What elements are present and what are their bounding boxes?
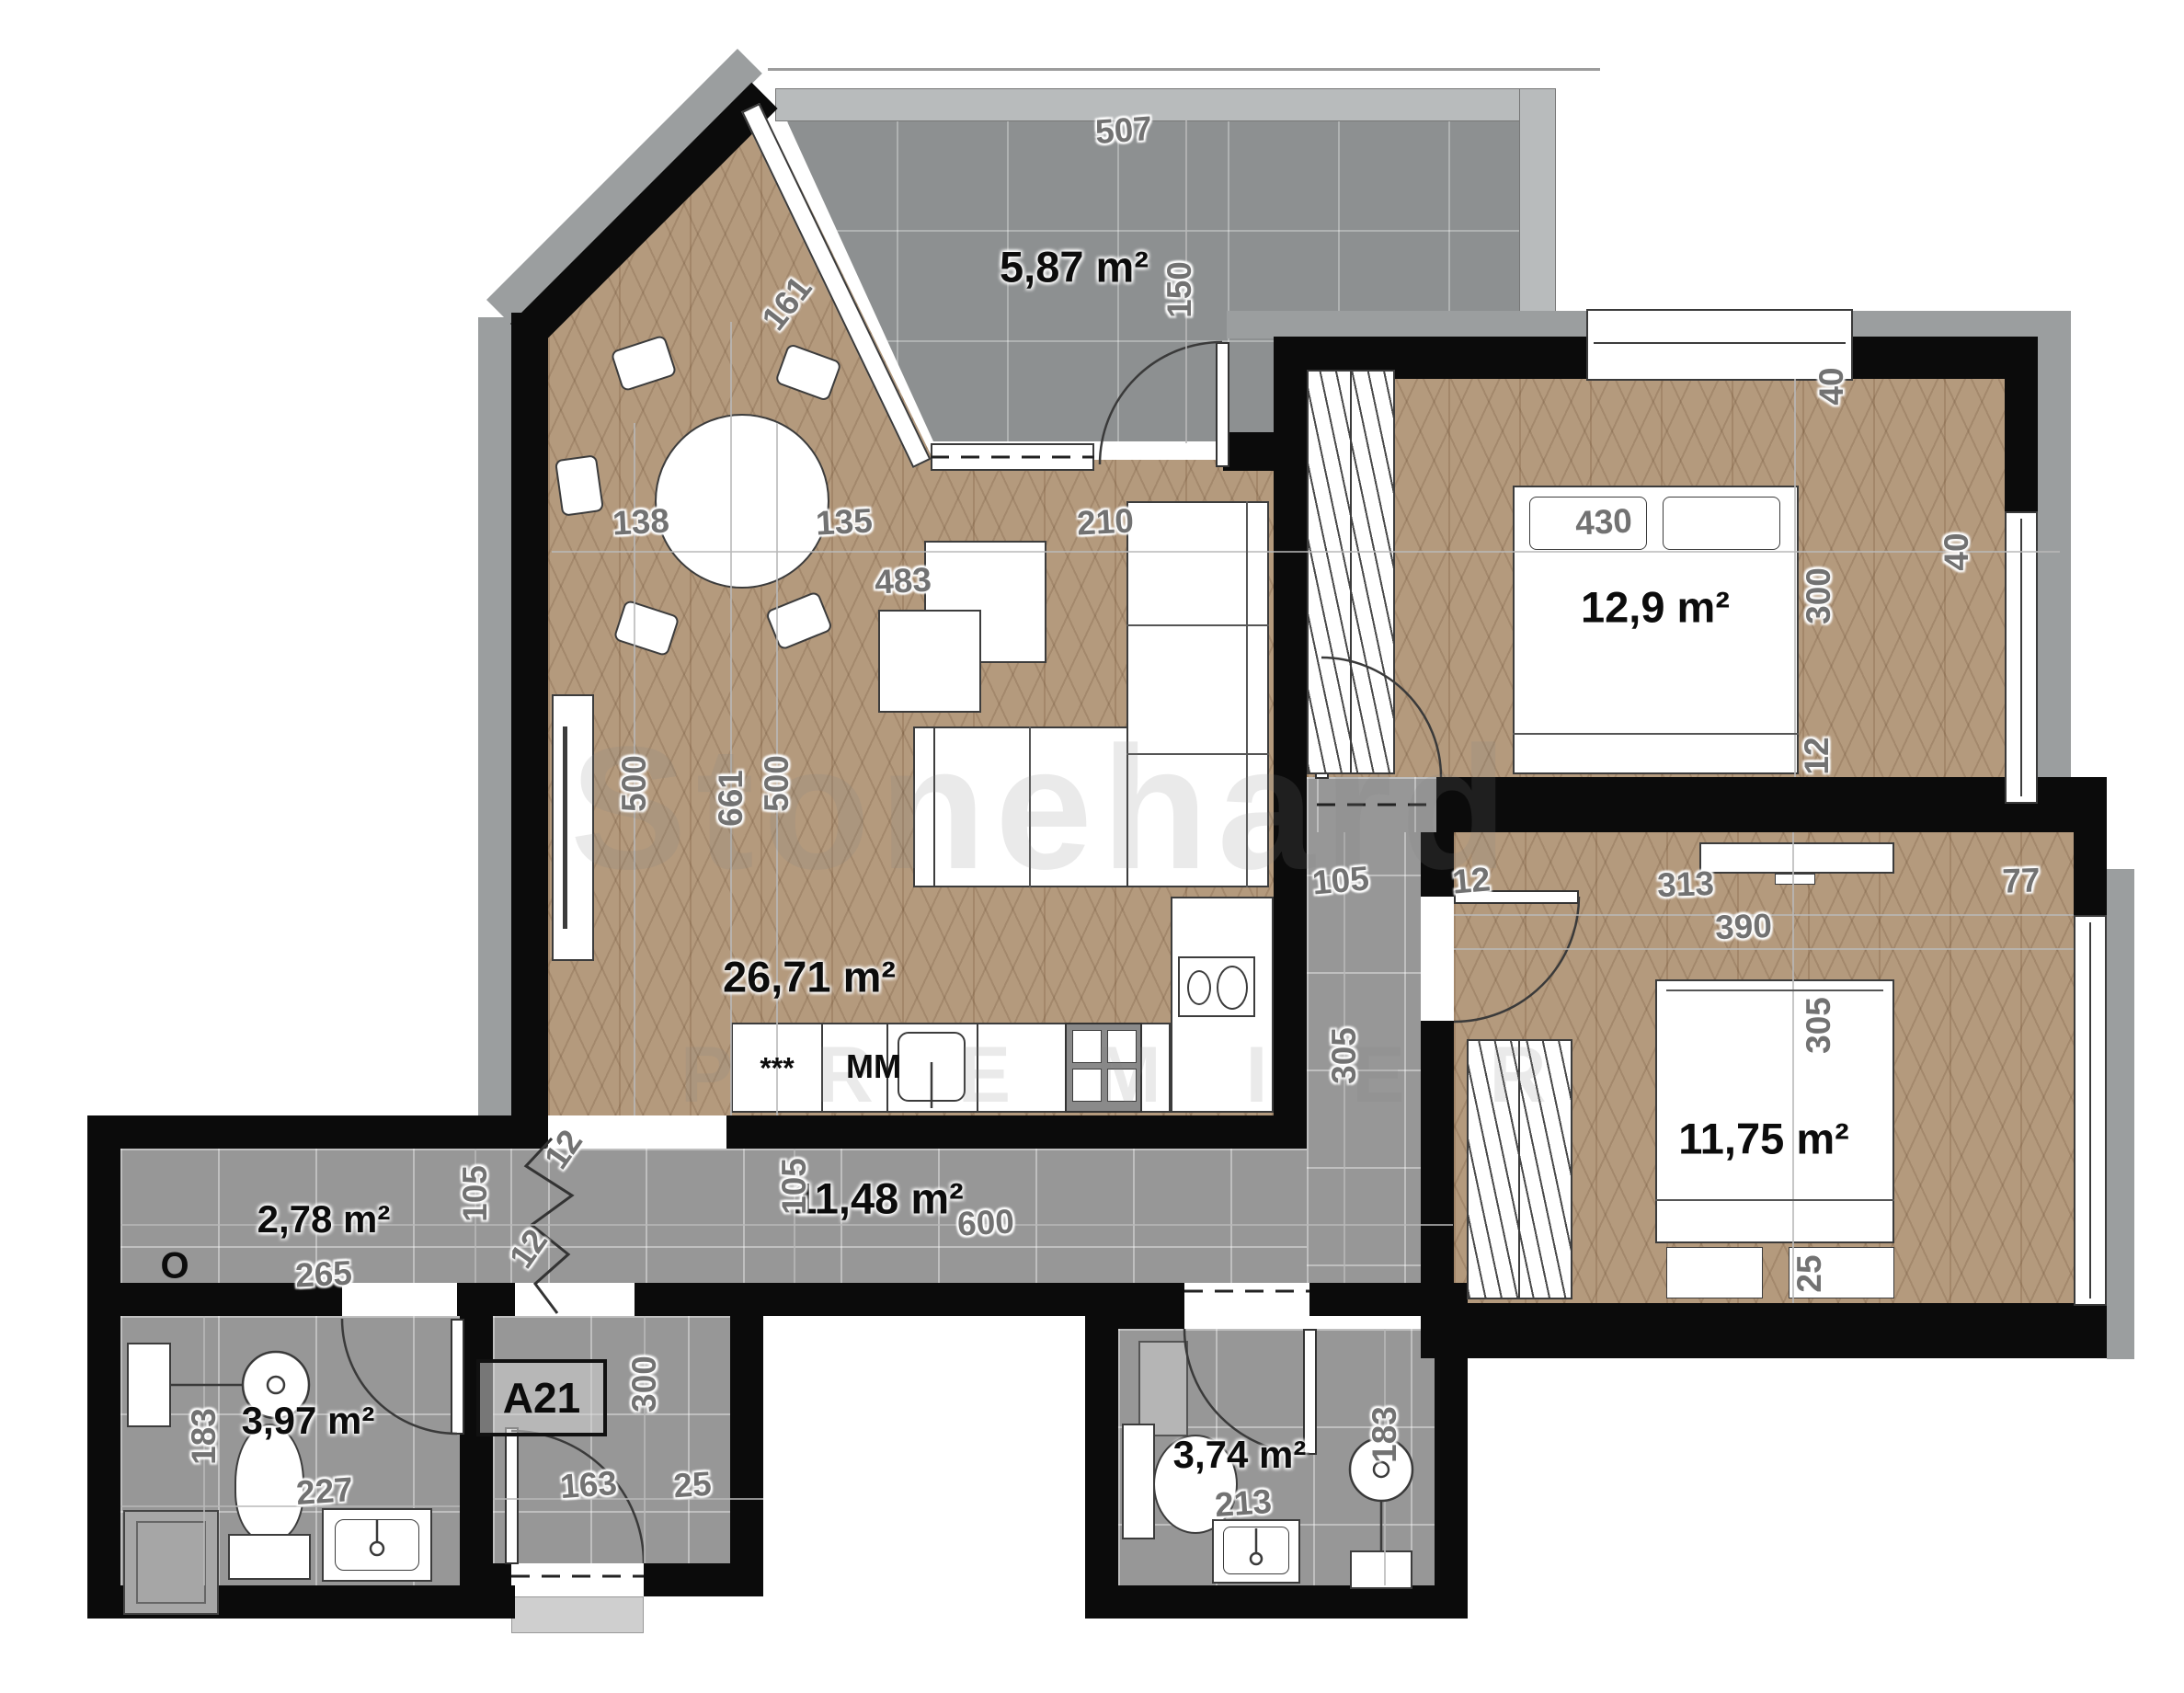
dim-105-corridor: 105 [775,1158,814,1215]
area-label-bathroom2: 3,74 m² [1173,1433,1307,1477]
dim-265: 265 [294,1253,353,1295]
dishwasher-label: *** [760,1052,794,1086]
dim-305-bedroom2: 305 [1800,997,1838,1054]
dim-300-bedroom1: 300 [1800,567,1838,624]
dim-25-bedroom2: 25 [1790,1254,1829,1292]
dim-500a: 500 [615,755,654,812]
dim-40a: 40 [1812,367,1851,405]
washing-machine-label: MM [846,1047,901,1086]
dim-40b: 40 [1938,532,1976,570]
dim-183-bathroom1: 183 [185,1408,223,1465]
shower-head-center-bathroom2 [1374,1462,1389,1477]
dim-500b: 500 [758,755,796,812]
watermark-subtitle: P R E M I E R [680,1030,1578,1121]
dim-105-entry: 105 [456,1165,495,1222]
dim-483: 483 [874,560,932,601]
area-label-bedroom1: 12,9 m² [1581,582,1730,633]
area-label-balcony: 5,87 m² [1000,242,1149,292]
area-label-bedroom2: 11,75 m² [1678,1114,1849,1164]
dim-12-bedroom1: 12 [1798,737,1836,774]
dim-661: 661 [712,770,750,827]
dim-305-hall: 305 [1325,1027,1364,1084]
dim-430: 430 [1574,501,1633,543]
dim-105-hall: 105 [1310,859,1370,902]
dim-163: 163 [559,1464,619,1506]
dim-600: 600 [956,1202,1015,1243]
dim-150: 150 [1161,261,1199,318]
dim-227: 227 [295,1470,355,1513]
dim-138: 138 [612,501,670,543]
dim-507: 507 [1094,109,1154,152]
dim-25-vestibule: 25 [672,1465,713,1506]
dim-300-vestibule: 300 [625,1356,664,1413]
sink-tap-dot-bathroom2 [1251,1553,1262,1564]
area-label-bathroom1: 3,97 m² [242,1399,375,1443]
dim-390: 390 [1714,907,1772,947]
entry-cabinet-label: O [160,1246,189,1287]
dim-183-bathroom2: 183 [1366,1406,1404,1463]
dim-135: 135 [815,501,874,543]
area-label-corridor: 11,48 m² [793,1173,964,1224]
unit-label-box: A21 [476,1359,607,1436]
dim-213: 213 [1214,1482,1274,1525]
dim-77: 77 [2002,861,2041,900]
dim-12-bedroom2: 12 [1451,860,1492,901]
door-arc-balcony [1100,342,1222,464]
vanity-tap-dot-bathroom1 [371,1542,383,1555]
dim-313: 313 [1656,864,1714,905]
floor-plan: Stonehard P R E M I E R 5,87 m² 26,71 m²… [0,0,2184,1693]
shower-head-center-bathroom1 [268,1377,284,1393]
dim-210: 210 [1076,501,1135,543]
area-label-living: 26,71 m² [723,952,896,1002]
unit-label: A21 [503,1373,580,1423]
area-label-entry: 2,78 m² [257,1197,391,1241]
